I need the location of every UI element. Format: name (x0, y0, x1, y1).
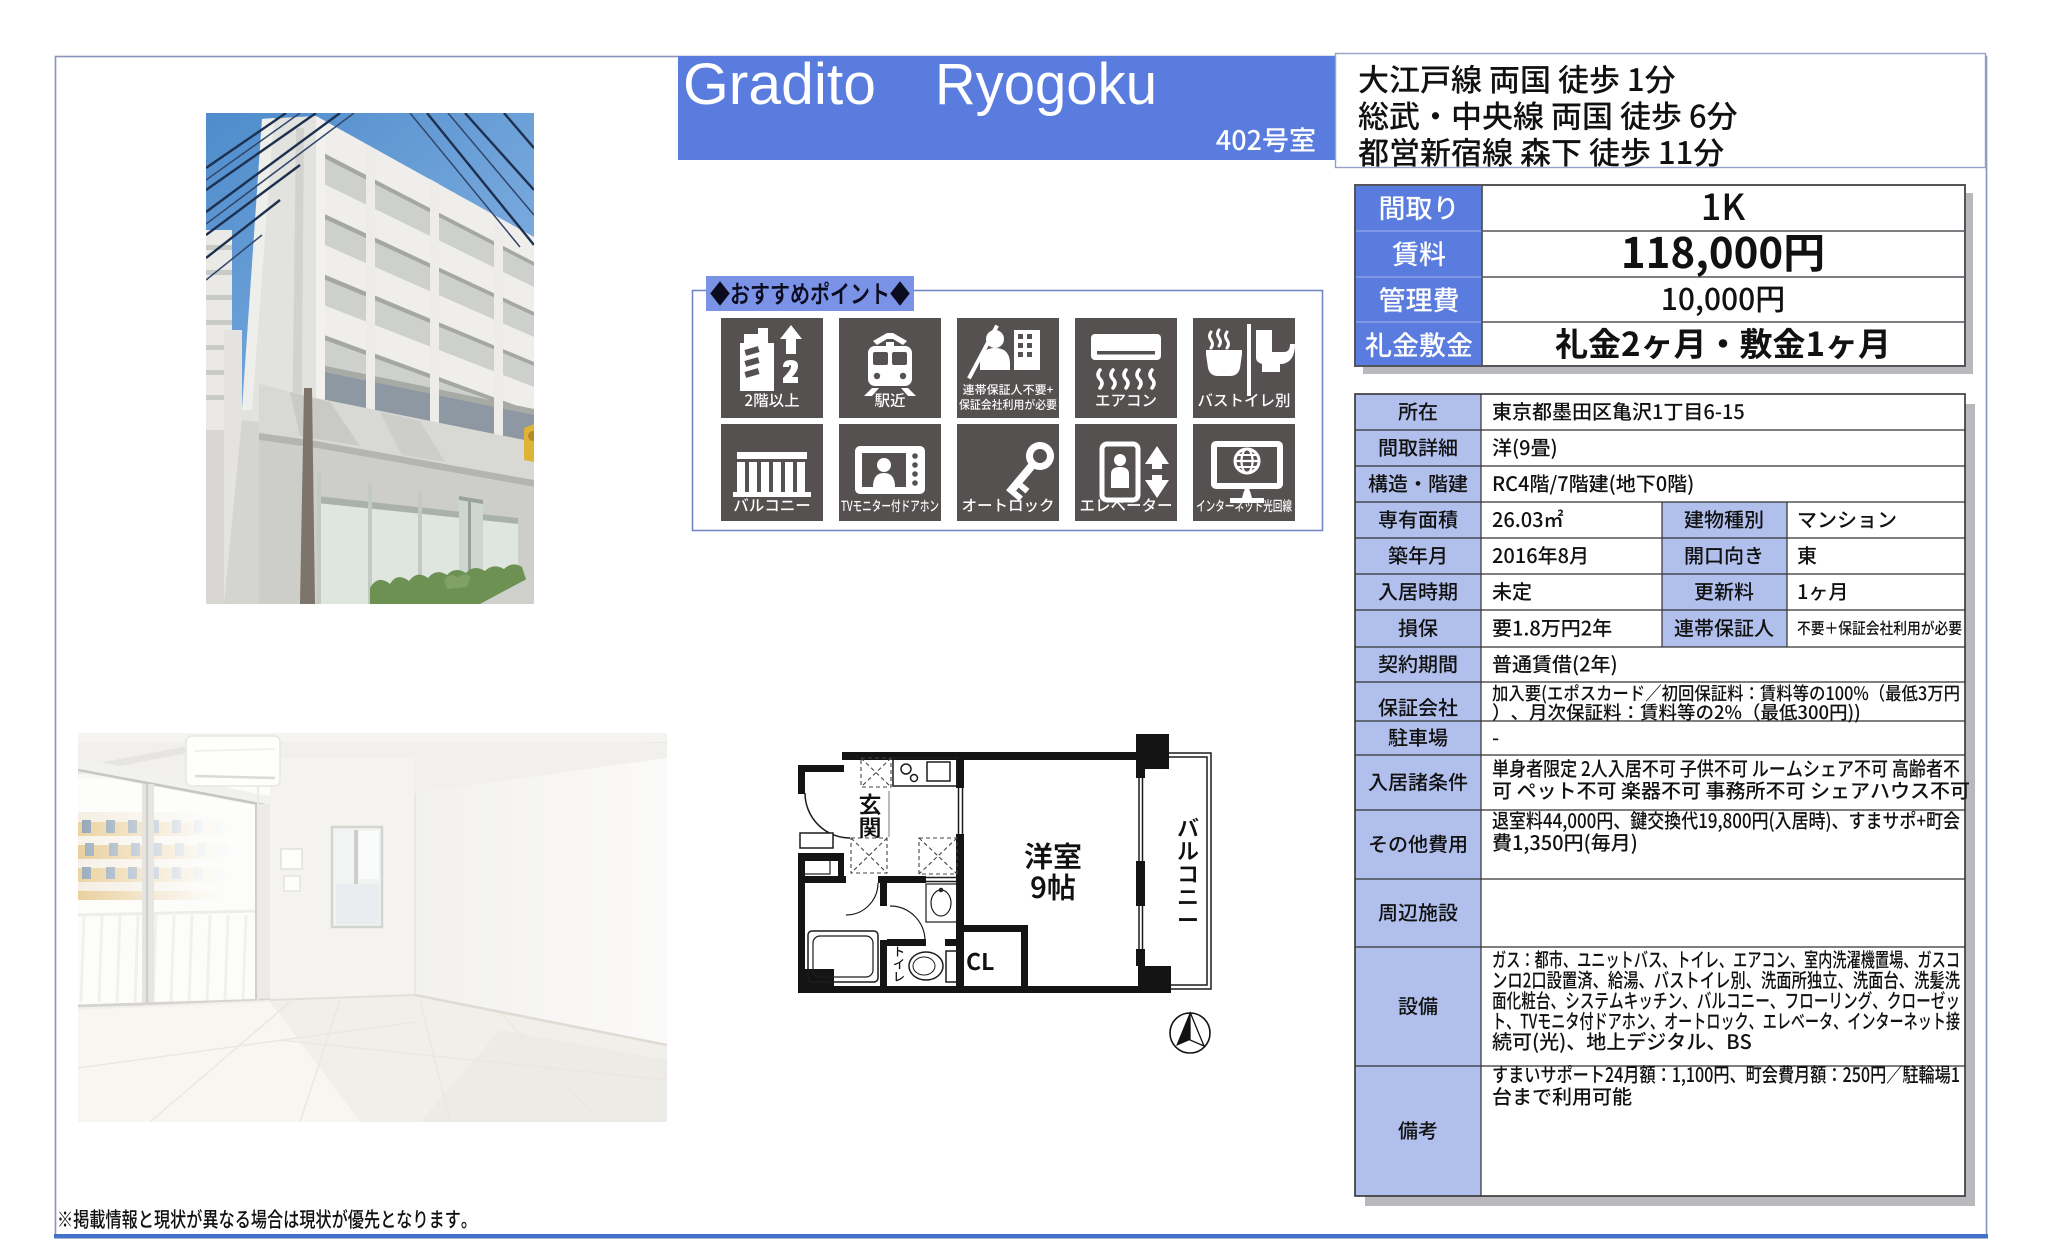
svg-text:Gradito: Gradito (683, 52, 876, 117)
svg-text:Ryogoku: Ryogoku (935, 52, 1157, 117)
